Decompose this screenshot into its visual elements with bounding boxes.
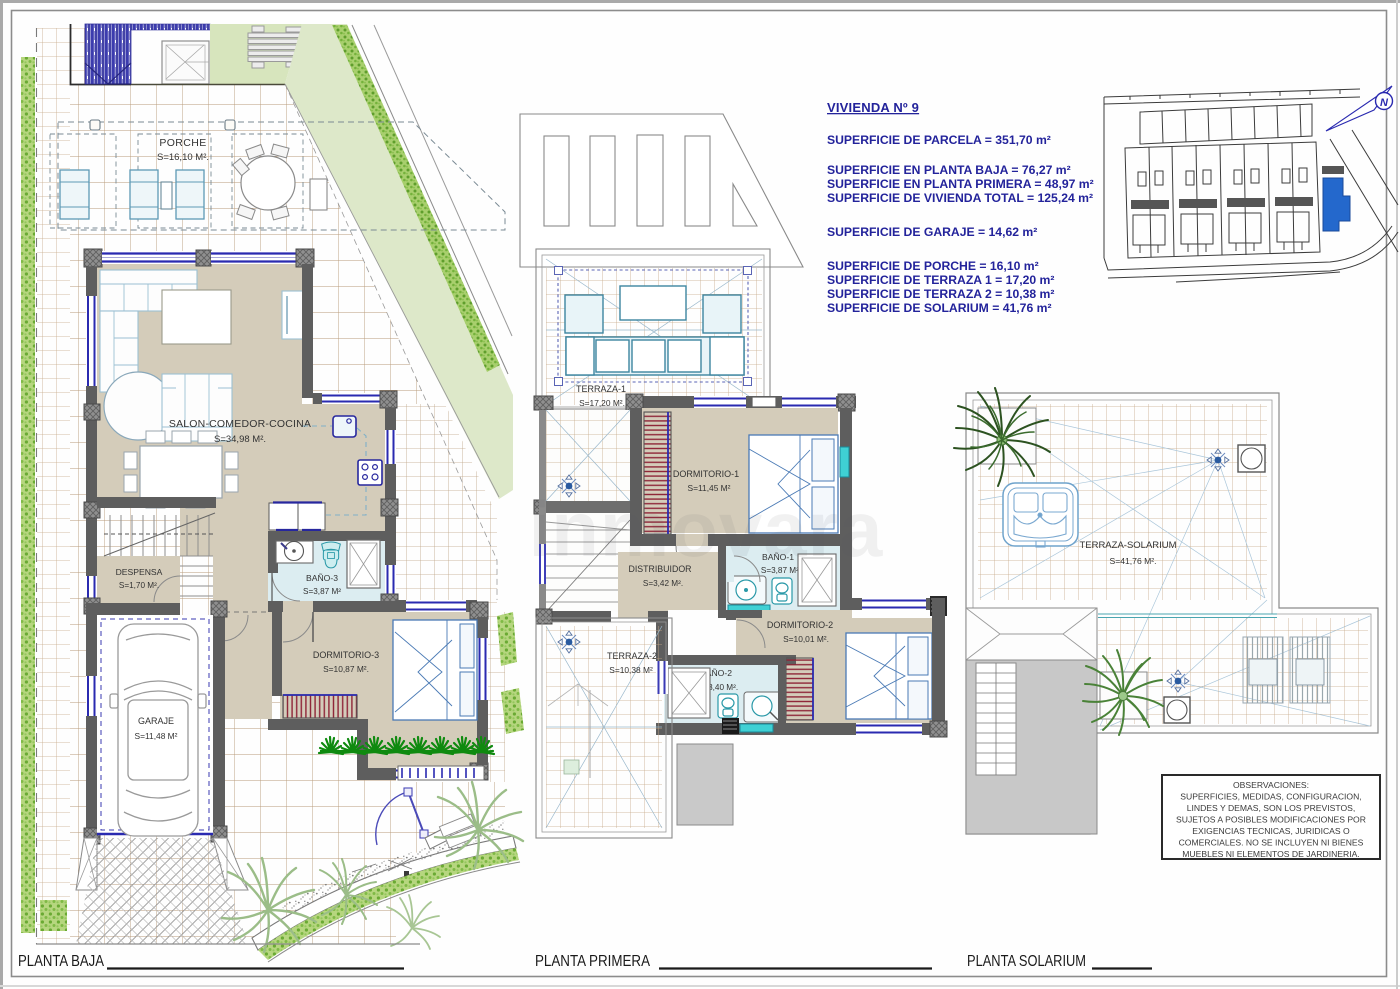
svg-text:S=1,70 M².: S=1,70 M².	[119, 581, 159, 590]
svg-text:SUPERFICIE DE TERRAZA 1 = 17,2: SUPERFICIE DE TERRAZA 1 = 17,20 m²	[827, 273, 1054, 287]
svg-text:SUPERFICIE DE PORCHE = 16,10 m: SUPERFICIE DE PORCHE = 16,10 m²	[827, 259, 1039, 273]
svg-text:MUEBLES NI ELEMENTOS DE JARDIN: MUEBLES NI ELEMENTOS DE JARDINERIA.	[1182, 849, 1360, 859]
svg-text:VIVIENDA Nº 9: VIVIENDA Nº 9	[827, 100, 919, 115]
svg-text:EXIGENCIAS TECNICAS, JURIDICAS: EXIGENCIAS TECNICAS, JURIDICAS O	[1192, 826, 1350, 836]
svg-text:S=41,76 M².: S=41,76 M².	[1109, 556, 1156, 566]
svg-text:SUPERFICIE DE SOLARIUM = 41,76: SUPERFICIE DE SOLARIUM = 41,76 m²	[827, 301, 1052, 315]
svg-text:TERRAZA-2: TERRAZA-2	[607, 651, 657, 661]
svg-text:N: N	[1380, 97, 1389, 109]
svg-text:PORCHE: PORCHE	[159, 137, 206, 149]
svg-text:DESPENSA: DESPENSA	[116, 567, 163, 577]
svg-text:COMERCIALES. NO SE INCLUYEN NI: COMERCIALES. NO SE INCLUYEN NI BIENES	[1179, 838, 1364, 848]
svg-text:SUPERFICIE EN PLANTA PRIMERA =: SUPERFICIE EN PLANTA PRIMERA = 48,97 m²	[827, 177, 1094, 191]
svg-text:SUPERFICIE EN PLANTA BAJA = 76: SUPERFICIE EN PLANTA BAJA = 76,27 m²	[827, 163, 1071, 177]
svg-text:DORMITORIO-3: DORMITORIO-3	[313, 650, 379, 660]
svg-text:BAÑO-3: BAÑO-3	[306, 573, 338, 583]
svg-text:S=17,20 M².: S=17,20 M².	[579, 398, 625, 408]
svg-text:S=16,10 M².: S=16,10 M².	[157, 152, 209, 163]
svg-text:S=10,01 M².: S=10,01 M².	[783, 634, 829, 644]
svg-text:GARAJE: GARAJE	[138, 716, 174, 726]
svg-text:S=3,42 M².: S=3,42 M².	[643, 579, 683, 588]
svg-text:LINDES Y DEMAS, SON LOS PREVIS: LINDES Y DEMAS, SON LOS PREVISTOS,	[1187, 803, 1356, 813]
svg-text:TERRAZA-SOLARIUM: TERRAZA-SOLARIUM	[1079, 540, 1176, 551]
svg-text:S=3,87 M²: S=3,87 M²	[303, 587, 341, 596]
svg-text:PLANTA PRIMERA: PLANTA PRIMERA	[535, 953, 650, 970]
svg-text:S=10,87 M².: S=10,87 M².	[323, 664, 369, 674]
svg-text:SUPERFICIES, MEDIDAS, CONFIGUR: SUPERFICIES, MEDIDAS, CONFIGURACION,	[1180, 792, 1361, 802]
svg-text:SUPERFICIE DE TERRAZA 2 = 10,3: SUPERFICIE DE TERRAZA 2 = 10,38 m²	[827, 287, 1054, 301]
svg-text:S=10,38 M²: S=10,38 M²	[609, 665, 653, 675]
svg-text:SALON-COMEDOR-COCINA: SALON-COMEDOR-COCINA	[169, 418, 311, 430]
svg-text:OBSERVACIONES:: OBSERVACIONES:	[1233, 780, 1309, 790]
svg-text:SUJETOS A POSIBLES MODIFICACIO: SUJETOS A POSIBLES MODIFICACIONES POR	[1176, 815, 1366, 825]
svg-text:DORMITORIO-2: DORMITORIO-2	[767, 620, 833, 630]
svg-text:S=34,98 M².: S=34,98 M².	[214, 434, 266, 445]
svg-text:SUPERFICIE DE VIVIENDA TOTAL =: SUPERFICIE DE VIVIENDA TOTAL = 125,24 m²	[827, 191, 1093, 205]
svg-text:SUPERFICIE DE PARCELA = 351,70: SUPERFICIE DE PARCELA = 351,70 m²	[827, 133, 1051, 147]
svg-text:S=11,48 M²: S=11,48 M²	[135, 731, 178, 741]
svg-text:TERRAZA-1: TERRAZA-1	[576, 384, 626, 394]
svg-text:SUPERFICIE DE GARAJE = 14,62 m: SUPERFICIE DE GARAJE = 14,62 m²	[827, 225, 1037, 239]
svg-text:inmovara: inmovara	[529, 485, 884, 573]
svg-text:PLANTA BAJA: PLANTA BAJA	[18, 953, 104, 970]
svg-text:PLANTA SOLARIUM: PLANTA SOLARIUM	[967, 953, 1086, 970]
svg-text:DORMITORIO-1: DORMITORIO-1	[673, 469, 739, 479]
